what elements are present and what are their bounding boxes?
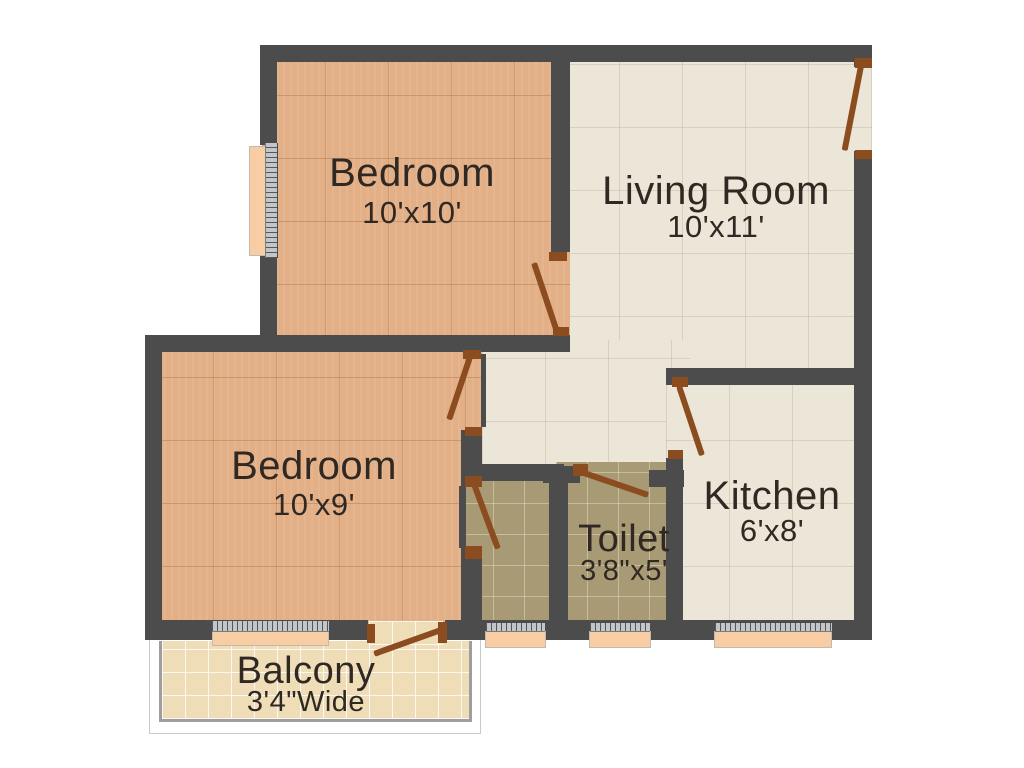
- kitchen-window-frame: [715, 622, 832, 632]
- bedroom1-door-jamb: [549, 252, 567, 261]
- kitchen-name-label: Kitchen: [612, 476, 932, 516]
- bathroom-window-sill: [485, 631, 546, 648]
- bathroom-window-frame: [486, 622, 545, 632]
- wall-bedroom1-left-upper: [260, 45, 277, 145]
- living-room-dims-label: 10'x11': [556, 211, 876, 242]
- bedroom2-name-label: Bedroom: [154, 446, 474, 486]
- wall-mid-horizontal: [145, 335, 570, 352]
- toilet-dims-label: 3'8"x5': [464, 557, 784, 586]
- bedroom1-name-label: Bedroom: [252, 153, 572, 193]
- wall-kitchen-top: [666, 368, 872, 385]
- bedroom2-window-sill: [212, 631, 329, 646]
- kitchen-window-sill: [714, 631, 832, 648]
- wall-bedroom2-door-edge: [481, 354, 486, 427]
- wall-bedroom2-left: [145, 335, 162, 637]
- balcony-name-label: Balcony: [146, 652, 466, 690]
- toilet-window-frame: [590, 622, 650, 632]
- bedroom2-window-frame: [212, 620, 329, 632]
- bedroom1-dims-label: 10'x10': [252, 197, 572, 228]
- bedroom2-dims-label: 10'x9': [154, 489, 474, 520]
- toilet-name-label: Toilet: [464, 520, 784, 558]
- entrance-door-jamb: [855, 150, 872, 159]
- balcony-dims-label: 3'4"Wide: [146, 688, 466, 717]
- toilet-window-sill: [589, 631, 651, 648]
- kitchen-door-jamb: [668, 450, 683, 459]
- floor-plan: Bedroom10'x10'Living Room10'x11'Bedroom1…: [0, 0, 1024, 768]
- balcony-door-jamb: [367, 624, 375, 643]
- bedroom2-door-jamb: [465, 427, 482, 436]
- living-room-name-label: Living Room: [556, 171, 876, 211]
